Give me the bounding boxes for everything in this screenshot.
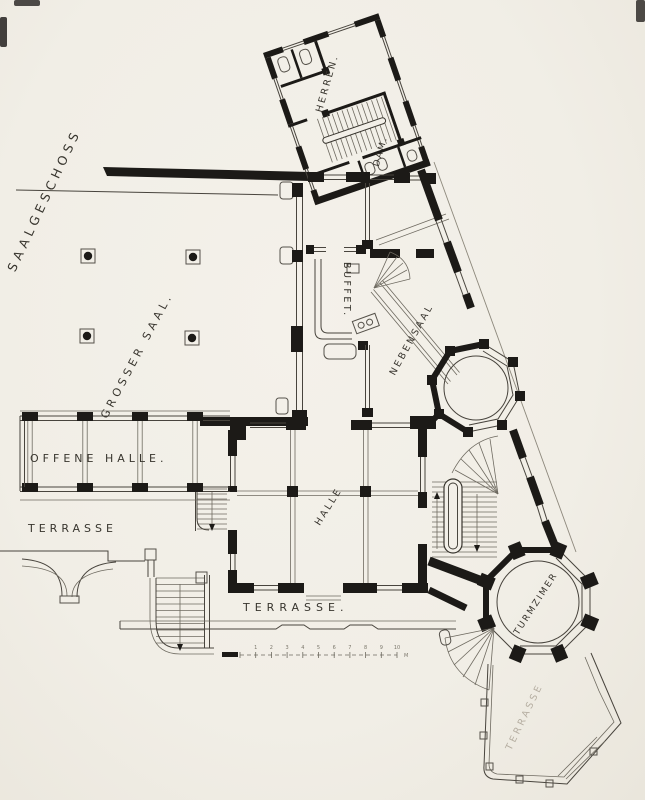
scale-tick: 10	[394, 645, 400, 651]
scale-tick: 2	[270, 645, 273, 651]
round-room	[427, 339, 525, 437]
halle-west-stair	[196, 487, 228, 531]
scale-tick: 3	[286, 645, 289, 651]
corner-steps	[566, 741, 605, 779]
post	[196, 572, 207, 583]
scale-tick: 5	[317, 645, 320, 651]
post	[145, 549, 156, 560]
terrasse-west: TERRASSE	[0, 522, 156, 603]
grand-staircase	[432, 436, 498, 557]
scan-artifacts	[0, 0, 645, 47]
column	[287, 486, 298, 497]
halle-label: HALLE	[313, 486, 345, 528]
floor-plan-drawing: GROSSER SAAL.	[0, 0, 645, 800]
turmzimmer-label: TURMZIMER	[512, 571, 560, 638]
radiator-icon	[280, 182, 293, 199]
scale-tick: 1	[254, 645, 257, 651]
floor-plan-sheet: GROSSER SAAL.	[0, 0, 645, 800]
buffet-room: BUFFET.	[315, 259, 379, 417]
halle-room: HALLE	[228, 416, 436, 600]
toilet-icon	[277, 56, 291, 73]
grosser-saal-room: GROSSER SAAL.	[16, 167, 310, 440]
flared-steps	[22, 559, 116, 603]
herren-label: HERREN.	[314, 53, 341, 114]
scale-tick: 4	[301, 645, 304, 651]
offene-halle-colonnade: OFFENE HALLE.	[20, 411, 230, 500]
saal-north-wall	[103, 167, 310, 181]
terrasse-southeast: TERRASSE	[480, 653, 621, 787]
sideboard	[352, 313, 379, 333]
radiator-icon	[280, 247, 293, 264]
scale-tick: 8	[364, 645, 367, 651]
direction-arrow	[474, 545, 480, 552]
southwest-stair	[150, 572, 214, 654]
radiator-icon	[276, 398, 288, 414]
tower-link-wall	[429, 590, 466, 608]
buffet-label: BUFFET.	[341, 262, 352, 318]
tower-turmzimmer: TURMZIMER	[429, 541, 599, 690]
nebensaal-label: NEBENSAAL	[388, 302, 436, 377]
column	[360, 486, 371, 497]
toilet-icon	[298, 48, 312, 65]
damen-label: DAM.	[372, 135, 390, 168]
scale-tick: 6	[333, 645, 336, 651]
scale-tick: 7	[348, 645, 351, 651]
toilet-icon	[406, 149, 418, 162]
counter	[324, 344, 356, 359]
stair-post	[439, 629, 452, 646]
terrasse-west-label: TERRASSE	[27, 522, 117, 535]
scale-bar: 1 2 3 4 5 6 7 8 9 10 M	[222, 645, 408, 659]
floor-title: SAALGESCHOSS	[4, 126, 83, 274]
tower-fan-stair	[439, 628, 494, 690]
saal-columns	[80, 249, 200, 345]
terrasse-south-label: TERRASSE.	[242, 601, 348, 614]
direction-arrow	[434, 492, 440, 499]
offene-halle-label: OFFENE HALLE.	[30, 452, 167, 465]
nebensaal-room: NEBENSAAL	[371, 252, 460, 384]
scale-unit: M	[404, 653, 408, 659]
grosser-saal-label: GROSSER SAAL.	[98, 290, 176, 421]
direction-arrow	[209, 524, 215, 531]
saal-east-wall	[291, 183, 307, 424]
scale-tick: 9	[380, 645, 383, 651]
terrasse-southeast-label: TERRASSE	[503, 682, 545, 754]
